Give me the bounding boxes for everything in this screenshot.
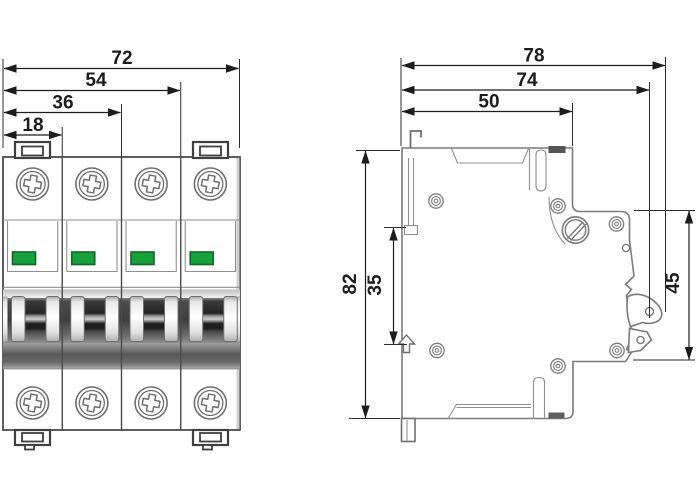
terminal-screw-icon <box>194 168 226 200</box>
dimension-45: 45 <box>663 211 693 361</box>
dimension-54: 54 <box>4 70 181 95</box>
status-indicator-window <box>131 252 154 265</box>
top-clip <box>193 142 228 158</box>
dim-label-78: 78 <box>523 46 544 67</box>
side-terminal-screw-icon <box>562 217 588 243</box>
handle-recess <box>25 299 49 342</box>
side-view: 78 74 50 82 <box>340 46 695 442</box>
rivet-icon <box>610 343 624 357</box>
top-clip <box>15 142 50 158</box>
breaker-dimension-drawing: 72 54 36 18 <box>0 0 700 500</box>
dimension-74: 74 <box>402 70 650 94</box>
status-indicator-window <box>190 252 213 265</box>
handle-recess <box>143 299 167 342</box>
bottom-tab <box>549 413 565 419</box>
din-clip-slider[interactable] <box>402 419 416 442</box>
side-toggle-handle[interactable] <box>627 294 662 326</box>
terminal-screw-icon <box>76 387 108 419</box>
terminal-screw-icon <box>17 168 49 200</box>
rivet-icon <box>609 217 623 231</box>
rivet-icon <box>430 343 444 357</box>
status-indicator-window <box>13 252 36 265</box>
dim-label-36: 36 <box>52 93 73 114</box>
toggle-handle[interactable] <box>71 297 85 342</box>
toggle-handle[interactable] <box>130 297 144 342</box>
technical-drawing-page: 72 54 36 18 <box>0 0 700 500</box>
dim-label-45: 45 <box>663 272 684 294</box>
top-tab <box>549 146 566 153</box>
toggle-handle[interactable] <box>105 297 119 342</box>
dim-label-54: 54 <box>85 70 107 91</box>
toggle-handle[interactable] <box>165 297 179 342</box>
rivet-icon <box>429 194 443 208</box>
din-clip[interactable] <box>193 430 228 450</box>
handle-recess <box>84 299 108 342</box>
toggle-handle[interactable] <box>189 297 203 342</box>
status-indicator-window <box>72 252 95 265</box>
channel-edge-left <box>3 297 8 342</box>
dimension-35: 35 <box>365 228 398 345</box>
terminal-screw-icon <box>194 387 226 419</box>
rear-top-hook <box>411 131 422 148</box>
front-view: 72 54 36 18 <box>3 48 240 450</box>
front-dimensions: 72 54 36 18 <box>3 48 240 157</box>
terminal-screw-icon <box>135 387 167 419</box>
din-clip[interactable] <box>15 430 50 450</box>
toggle-handle[interactable] <box>46 297 60 342</box>
dim-label-74: 74 <box>516 70 538 91</box>
dimension-18: 18 <box>4 115 63 139</box>
terminal-screw-icon <box>17 387 49 419</box>
handle-recess <box>202 299 226 342</box>
dimension-78: 78 <box>402 46 666 70</box>
dim-label-35: 35 <box>365 274 386 296</box>
handle-lock-tab <box>629 329 652 353</box>
dim-label-18: 18 <box>22 115 43 136</box>
rivet-icon <box>551 199 565 213</box>
dim-label-82: 82 <box>340 273 361 294</box>
dim-label-72: 72 <box>111 48 132 69</box>
toggle-handle[interactable] <box>224 297 238 342</box>
rivet-icon <box>551 359 565 373</box>
terminal-screw-icon <box>76 168 108 200</box>
dimension-72: 72 <box>4 48 240 73</box>
side-body-outline <box>402 148 635 419</box>
dimension-50: 50 <box>402 92 573 116</box>
terminal-screw-icon <box>135 168 167 200</box>
toggle-handle[interactable] <box>12 297 26 342</box>
dim-label-50: 50 <box>478 92 499 113</box>
dimension-36: 36 <box>4 93 122 117</box>
